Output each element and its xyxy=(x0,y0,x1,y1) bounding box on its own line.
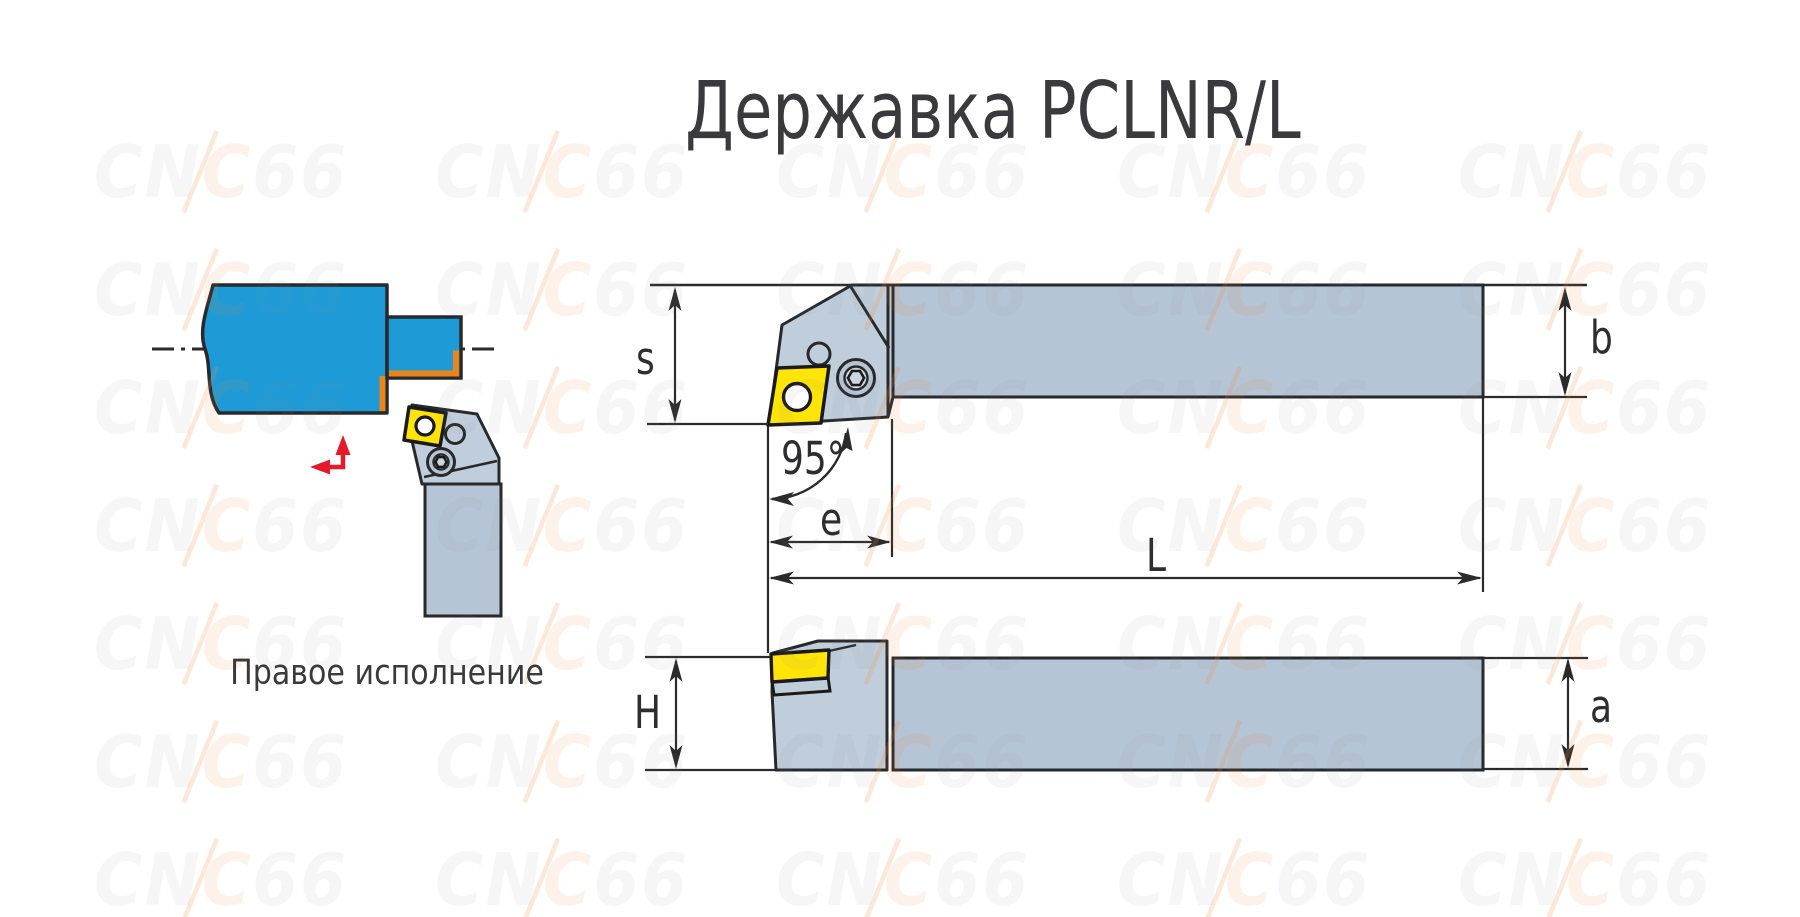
insert-hole-side xyxy=(784,384,811,411)
shank-top-view xyxy=(893,658,1483,770)
dimension-H xyxy=(645,657,776,770)
dimension-a xyxy=(1483,658,1588,769)
feed-direction-arrow xyxy=(310,435,351,475)
workpiece-turned-section xyxy=(387,317,461,378)
machined-end-face xyxy=(453,351,459,377)
page-title: Державка PCLNR/L xyxy=(685,72,1301,151)
dimension-label-s: s xyxy=(636,336,655,381)
cutting-insert-top-view xyxy=(771,650,829,682)
dimension-L xyxy=(769,397,1483,592)
tool-holder-pictorial xyxy=(404,405,501,616)
dimension-b xyxy=(1483,287,1587,397)
shank-side-view xyxy=(893,285,1483,397)
workpiece-large-section xyxy=(203,285,387,413)
dimension-label-e: e xyxy=(820,497,842,542)
dimension-label-L: L xyxy=(1146,533,1166,578)
machined-od-surface xyxy=(389,371,459,377)
machined-shoulder-face xyxy=(380,376,386,411)
dimension-label-b: b xyxy=(1590,315,1613,360)
dimension-label-a: a xyxy=(1590,684,1612,729)
top-view-drawing xyxy=(645,641,1588,770)
clamp-pin xyxy=(446,425,465,444)
turning-operation-illustration xyxy=(152,285,501,616)
insert-hole xyxy=(416,417,434,435)
dimension-label-95deg: 95° xyxy=(781,436,845,481)
orientation-caption: Правое исполнение xyxy=(230,656,544,691)
dimension-label-H: H xyxy=(634,690,661,735)
holder-shank xyxy=(425,484,501,616)
clamp-pin-side xyxy=(808,343,830,365)
catalog-diagram-page: CNC66CNC66CNC66CNC66CNC66CNC66CNC66CNC66… xyxy=(0,0,1800,917)
dimension-s xyxy=(647,287,768,424)
